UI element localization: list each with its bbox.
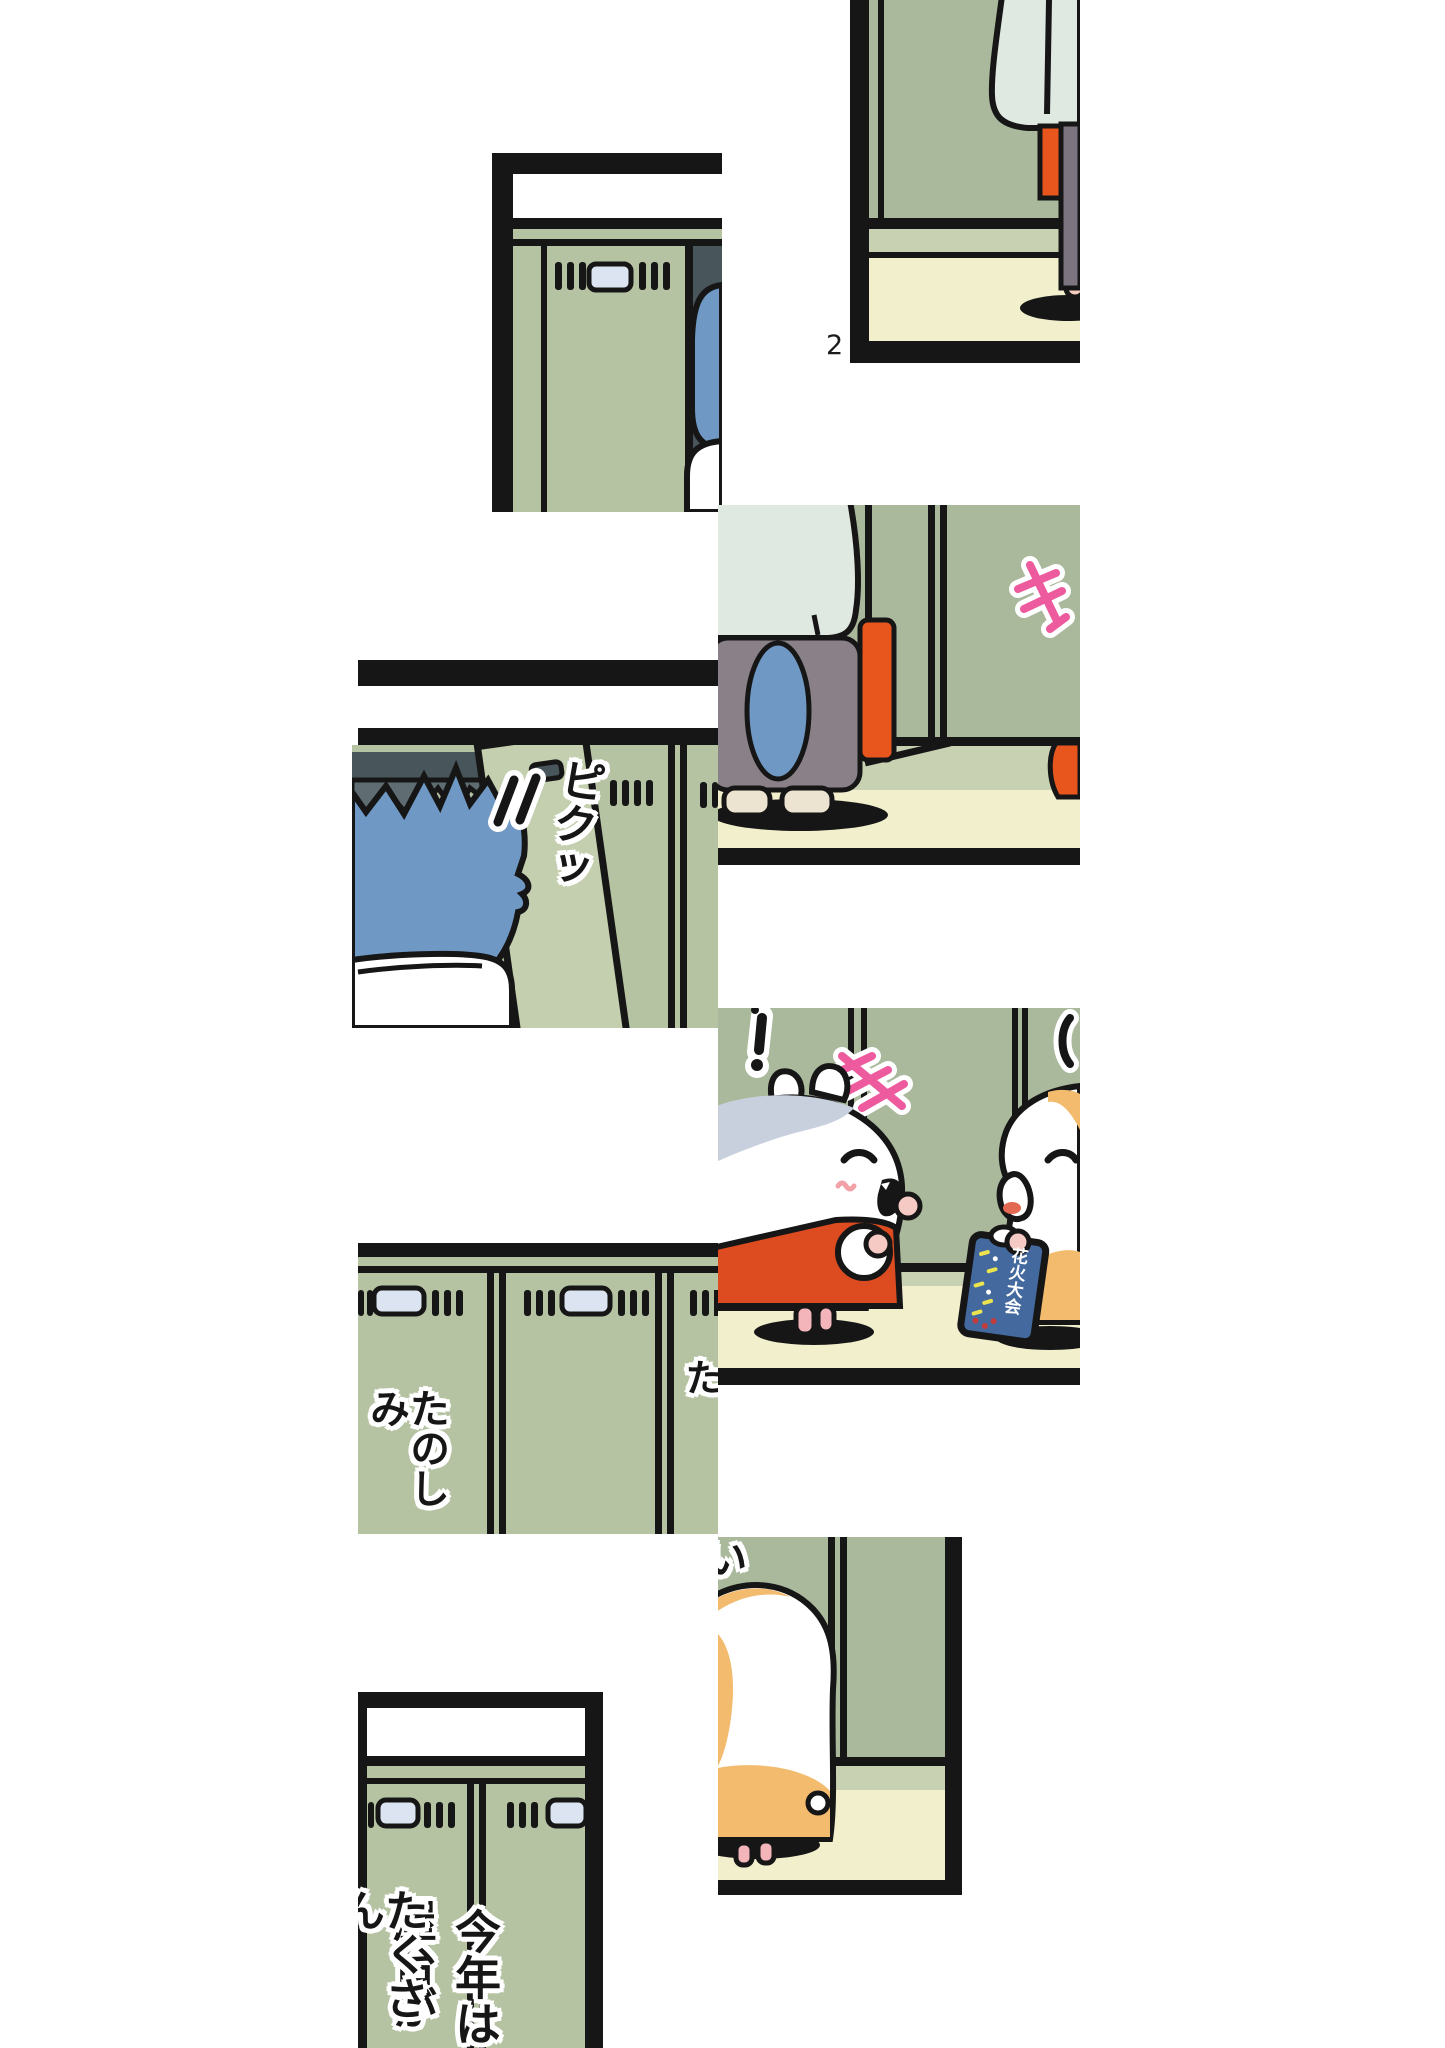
foot: [818, 1306, 834, 1332]
shirt: [687, 441, 722, 512]
panel-border-top: [358, 1243, 718, 1257]
hamster-back-artwork: [718, 1537, 962, 1895]
panel-top-left-lockers: [492, 153, 722, 512]
ear-right: [812, 1066, 847, 1100]
panel-top-right-standing: [850, 0, 1080, 363]
panel-legs-from-behind: [718, 505, 1080, 865]
foot: [758, 1841, 774, 1863]
hamsters-artwork: [718, 1008, 1080, 1385]
panel-border-top: [358, 728, 718, 745]
panel-bottom-left-lockers: 今年は 屋台が たくさん: [358, 1692, 603, 2048]
panel-piku-locker: ピクッ: [352, 728, 718, 1028]
locker-artwork: [492, 153, 722, 512]
panel-lockers-speech: たのしみ たのしみた: [358, 1243, 718, 1534]
panel-border-bottom: [718, 1368, 1080, 1385]
locker-name-plate: [374, 1288, 424, 1314]
speech-tanoshimita: たのしみた: [682, 1358, 718, 1534]
legs-artwork: [718, 505, 1080, 865]
pants: [1061, 124, 1080, 288]
panel-border-bottom: [718, 1880, 962, 1895]
panel-border-bottom: [718, 848, 1080, 865]
tail-bump: [808, 1793, 828, 1813]
bag-strap: [860, 620, 894, 760]
clipped-panel-border: [358, 660, 718, 686]
speech-kotoshiwa: 今年は: [452, 1908, 498, 2046]
panel-border-top: [492, 153, 722, 174]
orange-bag: [1050, 743, 1080, 797]
shoe-right: [782, 788, 832, 815]
robe: [992, 0, 1080, 128]
blue-tail: [747, 643, 809, 779]
speech-tanoshimi: たのしみ: [366, 1388, 446, 1534]
locker-name-plate: [589, 264, 631, 290]
panel-border-top: [358, 1692, 603, 1708]
foot: [796, 1306, 814, 1334]
twitch-tick-marks: [498, 778, 536, 822]
panel-border-right: [585, 1692, 603, 2048]
locker-name-plate: [548, 1800, 586, 1826]
pink-hand-left: [866, 1232, 890, 1256]
foot: [736, 1843, 752, 1865]
standing-character-artwork: [850, 0, 1080, 363]
speech-i-continuation: い: [718, 1537, 744, 1579]
shoe-left: [724, 788, 770, 815]
speech-takusan: たくさん: [358, 1888, 424, 2048]
panel-border-left: [850, 0, 869, 363]
panel-border-right: [945, 1537, 962, 1895]
manga-page: 2 ピ: [0, 0, 1445, 2048]
panel-hamster-back: い: [718, 1537, 962, 1895]
hand-near-mouth: [896, 1194, 920, 1218]
panel-border-bottom: [850, 341, 1080, 363]
blue-hair: [692, 285, 722, 450]
shirt-back: [718, 505, 858, 638]
locker-name-plate: [562, 1288, 610, 1314]
panel-border-left: [492, 153, 513, 512]
paren-mark: [1063, 1018, 1071, 1064]
page-number: 2: [826, 330, 843, 361]
panel-hamsters-packet: 花火大会: [718, 1008, 1080, 1385]
locker-name-plate: [378, 1800, 418, 1826]
